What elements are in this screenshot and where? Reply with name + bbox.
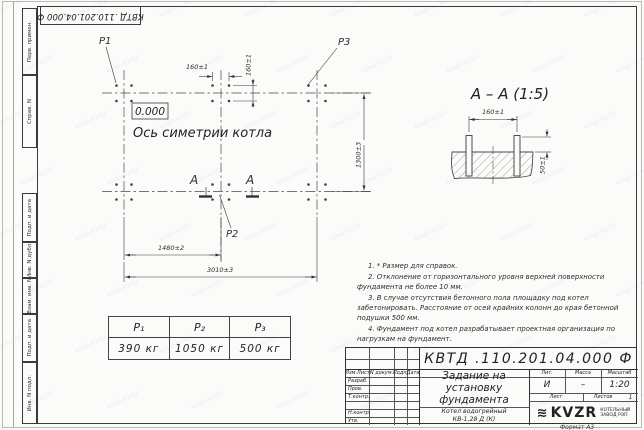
tb-sheets-value: 1	[623, 393, 638, 401]
tb-sheet-label: Лист	[529, 393, 583, 401]
tb-lit-header: Лит.	[529, 369, 565, 377]
topleft-doc-number: КВТД .110.201.04.000 Ф	[37, 11, 144, 21]
load-table: P₁ P₂ P₃ 390 кг 1050 кг 500 кг	[108, 316, 291, 360]
product-name: Котел водогрейный КВ-1,28 Д (К)	[419, 407, 529, 425]
tb-mass-header: Масса	[565, 369, 601, 377]
drawing-title-line: Задание на	[442, 370, 506, 382]
product-name-line: КВ-1,28 Д (К)	[453, 416, 496, 424]
topleft-doc-number-stamp: КВТД .110.201.04.000 Ф	[40, 6, 141, 25]
drawing-sheet: 160±1 160±1 1300±3 1480±2 3010±3 P1 P2 P…	[0, 0, 644, 430]
logo-subtitle-line: ЗАВОД РЭП	[600, 413, 627, 418]
format-label: Формат А3	[560, 424, 594, 430]
load-header-p2: P₂	[170, 317, 231, 338]
tb-col-izm-list: Изм.Лист	[346, 369, 369, 377]
tb-row-prov: Пров.	[346, 385, 369, 393]
drawing-title-line: фундамента	[439, 394, 509, 406]
margin-box-inv-dubl: Инв. N дубл.	[22, 242, 37, 278]
load-table-header-row: P₁ P₂ P₃	[109, 317, 290, 338]
logo-brand-text: KVZR	[551, 405, 598, 421]
tb-row-tkontr: Т.контр.	[346, 393, 369, 401]
drawing-title-line: установку	[446, 382, 503, 394]
product-name-line: Котел водогрейный	[442, 408, 507, 416]
logo-subtitle: КОТЕЛЬНЫЙ ЗАВОД РЭП	[600, 408, 630, 419]
margin-box-podp-data-1: Подп. и дата	[22, 193, 37, 242]
margin-label: Подп. и дата	[27, 319, 33, 356]
logo-subtitle-line: КОТЕЛЬНЫЙ	[600, 408, 630, 413]
title-block: КВТД .110.201.04.000 Ф Изм.Лист N докум.…	[345, 347, 637, 424]
margin-label: Перв. примен.	[27, 21, 33, 62]
tb-sheets-label: Листов	[583, 393, 623, 401]
tb-row-utv: Утв.	[346, 417, 369, 425]
margin-label: Взам. инв. N	[27, 278, 33, 314]
tb-col-n-dokum: N докум.	[369, 369, 394, 377]
tb-row-razrab: Разраб.	[346, 377, 369, 385]
load-header-p3: P₃	[230, 317, 290, 338]
tb-mass-value: –	[565, 377, 601, 393]
margin-label: Подп. и дата	[27, 199, 33, 236]
technical-notes: 1. * Размер для справок. 2. Отклонение о…	[357, 261, 636, 345]
margin-box-podp-data-2: Подп. и дата	[22, 314, 37, 362]
note-1: 1. * Размер для справок.	[357, 261, 636, 271]
note-3: 3. В случае отсутствия бетонного пола пл…	[357, 293, 636, 323]
note-2: 2. Отклонение от горизонтального уровня …	[357, 272, 636, 292]
sheet-edge-line	[13, 1, 14, 428]
tb-scale-header: Масштаб	[601, 369, 638, 377]
tb-col-data: Дата	[407, 369, 419, 377]
tb-row-blank	[346, 401, 369, 409]
load-value-p3: 500 кг	[230, 338, 290, 359]
margin-box-inv-podl: Инв. N подл.	[22, 362, 37, 424]
load-value-p1: 390 кг	[109, 338, 170, 359]
note-4: 4. Фундамент под котел разрабатывает про…	[357, 324, 636, 344]
margin-box-vzam-inv: Взам. инв. N	[22, 278, 37, 314]
margin-label: Инв. N дубл.	[27, 242, 33, 278]
drawing-title: Задание на установку фундамента	[419, 369, 529, 407]
company-logo: ≋ KVZR КОТЕЛЬНЫЙ ЗАВОД РЭП	[529, 401, 638, 425]
tb-scale-value: 1:20	[601, 377, 638, 393]
tb-lit-value: И	[529, 377, 565, 393]
logo-waves-icon: ≋	[537, 406, 548, 421]
doc-number: КВТД .110.201.04.000 Ф	[419, 348, 638, 369]
margin-box-sprav-n: Справ. N	[22, 75, 37, 148]
tb-col-podp: Подп.	[394, 369, 407, 377]
load-value-p2: 1050 кг	[170, 338, 231, 359]
load-header-p1: P₁	[109, 317, 170, 338]
margin-box-perv-primen: Перв. примен.	[22, 8, 37, 75]
margin-label: Инв. N подл.	[27, 375, 33, 411]
margin-label: Справ. N	[27, 99, 33, 124]
tb-row-nkontr: Н.контр.	[346, 409, 369, 417]
load-table-value-row: 390 кг 1050 кг 500 кг	[109, 338, 290, 359]
